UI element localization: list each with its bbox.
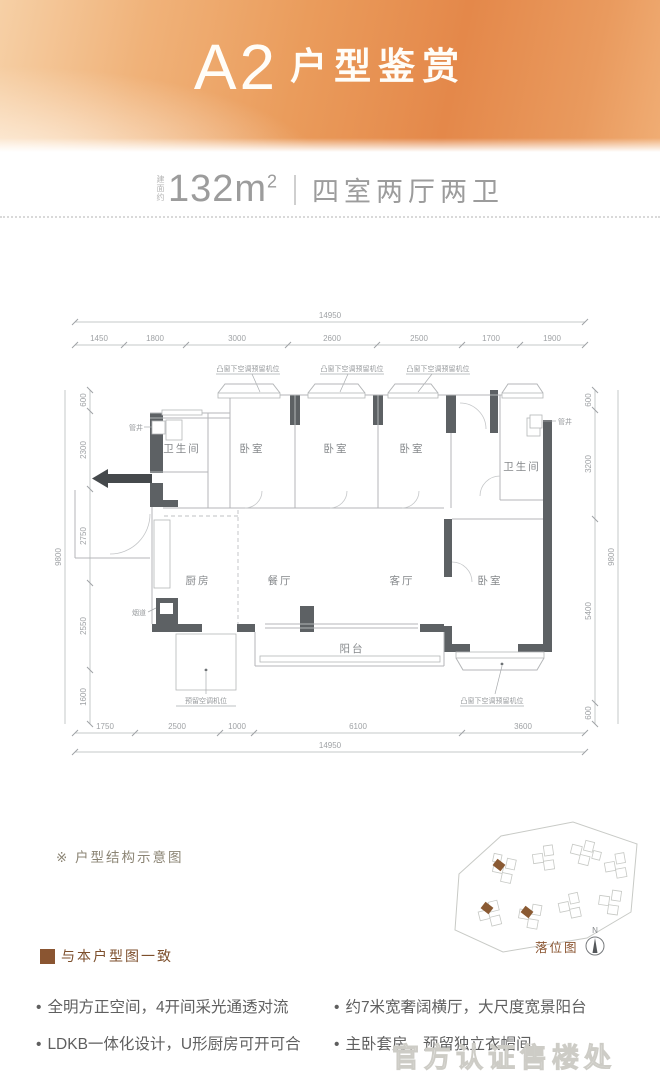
ac-labels-top: 凸窗下空调预留机位 凸窗下空调预留机位 凸窗下空调预留机位	[216, 364, 470, 397]
dim-right-4: 600	[584, 706, 593, 720]
dim-top-5: 2500	[410, 334, 428, 343]
room-master: 卧室	[478, 574, 503, 587]
room-balcony: 阳台	[340, 642, 365, 655]
area-value: 132m	[168, 168, 267, 210]
ac-top-label-1: 凸窗下空调预留机位	[217, 364, 280, 373]
legend-label: 与本户型图一致	[61, 946, 173, 966]
dim-right: 600 3200 5400 600 9800	[584, 387, 618, 727]
compass-n-label: N	[592, 926, 598, 935]
ac-top-label-3: 凸窗下空调预留机位	[407, 364, 470, 373]
room-kitchen: 厨房	[186, 574, 211, 587]
ac-top-label-2: 凸窗下空调预留机位	[321, 364, 384, 373]
shaft-left-label: 管井	[129, 423, 143, 432]
dim-right-2: 3200	[584, 455, 593, 473]
flue-label: 烟道	[132, 608, 146, 617]
compass-icon: N	[586, 926, 604, 955]
room-bed-1: 卧室	[240, 442, 265, 455]
legend: 与本户型图一致	[40, 946, 173, 966]
dim-right-total: 9800	[607, 548, 616, 566]
plan-walls	[150, 390, 552, 652]
room-count-text: 四室两厅两卫	[312, 170, 504, 209]
dim-left-5: 1600	[79, 688, 88, 706]
dim-bottom-4: 6100	[349, 722, 367, 731]
dim-bottom-total: 14950	[319, 741, 342, 750]
room-labels: 卫生间 卧室 卧室 卧室 卫生间 厨房 餐厅 客厅 卧室 阳台	[163, 442, 541, 655]
room-dining: 餐厅	[268, 574, 293, 587]
dim-bottom: 1750 2500 1000 6100 3600 14950	[72, 722, 588, 755]
poster-page: A2户型鉴赏 建面约 132m2 四室两厅两卫 14950 1450 1800 …	[0, 0, 660, 1072]
dim-left: 9800 600 2300 2750 2550 1600	[54, 387, 93, 727]
ac-bottom-left-label: 预留空调机位	[185, 696, 227, 705]
dim-left-2: 2300	[79, 441, 88, 459]
divider-bar	[294, 175, 296, 205]
dim-left-1: 600	[79, 393, 88, 407]
entry-arrow	[92, 469, 152, 488]
dim-bottom-1: 1750	[96, 722, 114, 731]
dim-right-1: 600	[584, 393, 593, 407]
building-clusters	[476, 837, 627, 929]
dim-top-7: 1900	[543, 334, 561, 343]
room-bath-left: 卫生间	[163, 442, 201, 455]
area-line: 建面约 132m2 四室两厅两卫	[0, 168, 660, 211]
shaft-right-label: 管井	[558, 417, 572, 426]
area-sup: 2	[267, 171, 278, 191]
dim-top-total: 14950	[319, 311, 342, 320]
banner-title: 户型鉴赏	[290, 46, 466, 87]
dim-bottom-5: 3600	[514, 722, 532, 731]
floor-plan: 14950 1450 1800 3000 2600 2500 1700 1900…	[40, 300, 625, 770]
banner-heading: A2户型鉴赏	[0, 30, 660, 104]
dim-right-3: 5400	[584, 602, 593, 620]
dim-left-3: 2750	[79, 527, 88, 545]
dotted-separator	[0, 216, 660, 218]
site-plan-label: 落位图	[535, 940, 579, 955]
dim-top-2: 1800	[146, 334, 164, 343]
site-plan: 落位图 N	[443, 812, 653, 972]
room-living: 客厅	[390, 574, 415, 587]
dim-top-3: 3000	[228, 334, 246, 343]
dim-bottom-3: 1000	[228, 722, 246, 731]
feature-item: 约7米宽奢阔横厅，大尺度宽景阳台	[334, 998, 648, 1035]
dim-top-6: 1700	[482, 334, 500, 343]
legend-color-swatch	[40, 949, 55, 964]
watermark-text: 官方认证售楼处	[392, 1036, 616, 1072]
room-bath-right: 卫生间	[503, 460, 541, 473]
dim-top: 14950 1450 1800 3000 2600 2500 1700 1900	[72, 311, 588, 348]
unit-code: A2	[194, 31, 278, 103]
room-bed-3: 卧室	[400, 442, 425, 455]
flue-inner	[160, 603, 173, 614]
shaft-left: 管井	[129, 421, 165, 434]
area-prefix: 建面约	[156, 175, 165, 205]
room-bed-2: 卧室	[324, 442, 349, 455]
dim-left-total: 9800	[54, 548, 63, 566]
feature-item: LDKB一体化设计，U形厨房可开可合	[36, 1035, 334, 1072]
ac-bottom-right-label: 凸窗下空调预留机位	[461, 696, 524, 705]
dim-bottom-2: 2500	[168, 722, 186, 731]
banner: A2户型鉴赏	[0, 0, 660, 152]
feature-item: 全明方正空间，4开间采光通透对流	[36, 998, 334, 1035]
dim-top-4: 2600	[323, 334, 341, 343]
dim-left-4: 2550	[79, 617, 88, 635]
structure-note: ※ 户型结构示意图	[56, 846, 184, 866]
dim-top-1: 1450	[90, 334, 108, 343]
area-size: 132m2	[168, 168, 278, 211]
